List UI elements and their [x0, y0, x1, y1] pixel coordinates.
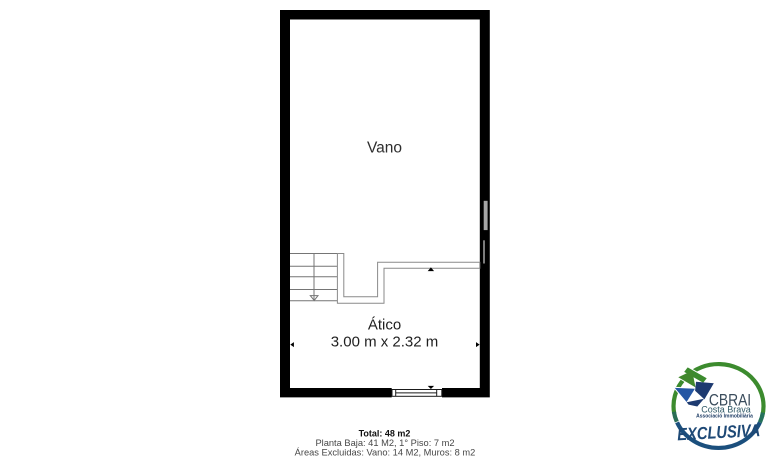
svg-text:3.00 m x 2.32 m: 3.00 m x 2.32 m	[331, 334, 439, 351]
svg-text:Total: 48 m2: Total: 48 m2	[359, 429, 411, 439]
svg-text:Associació Immobiliària: Associació Immobiliària	[696, 413, 753, 419]
svg-text:Ático: Ático	[368, 317, 401, 334]
svg-text:Vano: Vano	[367, 140, 402, 157]
svg-text:Áreas Excluidas: Vano: 14 M2,: Áreas Excluidas: Vano: 14 M2, Muros: 8 m…	[295, 447, 476, 457]
